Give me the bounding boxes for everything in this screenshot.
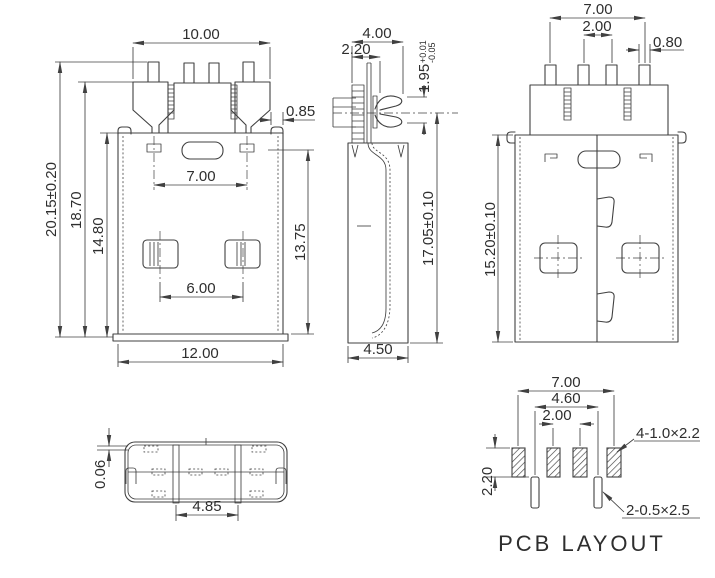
- top-view: 0.06 4.85: [92, 428, 287, 521]
- pcb-slot-right: [594, 477, 602, 508]
- top-view-body: [125, 438, 287, 503]
- dim-gap: 0.06: [92, 460, 109, 489]
- pcb-slot-left: [531, 477, 539, 508]
- back-view-insulator: [530, 85, 668, 135]
- label-pads: 4-1.0×2.2: [636, 425, 700, 442]
- back-view-shell: [507, 132, 686, 342]
- dim-top-width: 10.00: [182, 26, 220, 43]
- dim-pin-width: 0.80: [653, 34, 682, 51]
- pcb-layout: 7.00 4.60 2.00 2.20 4-1.0×2.2 2-0.5×2: [479, 374, 700, 556]
- back-view-pins: [545, 65, 650, 85]
- back-view-dimensions: 7.00 2.00 0.80 15.20±0.10: [482, 1, 684, 342]
- pcb-dimensions: 7.00 4.60 2.00 2.20 4-1.0×2.2 2-0.5×2: [479, 374, 700, 519]
- tab-mark-right: [640, 154, 652, 162]
- dimple-left: [143, 231, 178, 279]
- dim-shell-height: 18.70: [68, 191, 85, 229]
- side-view: 4.00 2.20 1.95 +0.01 -0.05 17.05±0.10 4: [333, 25, 458, 363]
- dim-bottom-width: 12.00: [181, 345, 219, 362]
- dim-pad-span: 7.00: [551, 374, 580, 391]
- dim-pin-pitch: 2.00: [582, 18, 611, 35]
- dim-dimple-span: 6.00: [186, 280, 215, 297]
- label-slots: 2-0.5×2.5: [626, 502, 690, 519]
- back-view: 7.00 2.00 0.80 15.20±0.10: [482, 1, 686, 342]
- side-tab-right: [276, 468, 286, 484]
- dimple-right: [225, 231, 260, 279]
- crimp-serrations: [168, 85, 237, 119]
- dim-pad-height: 2.20: [479, 467, 496, 496]
- side-tab-left: [126, 468, 136, 484]
- dim-ear-width: 0.85: [286, 103, 315, 120]
- dim-slot-span: 4.85: [192, 498, 221, 515]
- center-window: [182, 142, 223, 159]
- inner-marks: [144, 446, 266, 497]
- seam-window: [578, 151, 620, 168]
- pcb-layout-title: PCB LAYOUT: [498, 531, 666, 556]
- dim-depth: 4.00: [362, 25, 391, 42]
- latch-tab-upper: [597, 197, 614, 227]
- dim-total-height: 20.15±0.20: [43, 162, 60, 237]
- front-view-shell: [113, 127, 288, 341]
- dim-contact-tol-minus: -0.05: [427, 42, 437, 63]
- dim-pad-pitch: 2.00: [542, 407, 571, 424]
- contact-bar-right: [235, 445, 241, 503]
- dim-contact-height: 1.95: [416, 64, 433, 93]
- latch-tab-lower: [597, 292, 614, 322]
- dim-bottom-depth: 4.50: [363, 341, 392, 358]
- dim-height-back: 15.20±0.10: [482, 202, 499, 277]
- side-view-body: [348, 143, 408, 343]
- pcb-pads: [512, 448, 621, 508]
- front-view: 10.00 0.85 7.00 6.00 12.00 13.75: [43, 26, 315, 367]
- side-view-dimensions: 4.00 2.20 1.95 +0.01 -0.05 17.05±0.10 4: [341, 25, 443, 363]
- front-view-insulator: [133, 82, 270, 133]
- dim-right-height: 13.75: [292, 223, 309, 261]
- tab-mark-left: [545, 154, 557, 162]
- front-view-pins: [148, 62, 254, 83]
- dim-tab-offset: 2.20: [341, 41, 370, 58]
- technical-drawing-usb-connector: 10.00 0.85 7.00 6.00 12.00 13.75: [0, 0, 715, 578]
- dim-body-height: 14.80: [90, 217, 107, 255]
- dimple-back-left: [534, 235, 583, 281]
- contact-bar-left: [173, 445, 179, 503]
- dim-height-side: 17.05±0.10: [420, 191, 437, 266]
- dim-pin-span: 7.00: [583, 1, 612, 18]
- dimple-back-right: [616, 235, 665, 281]
- front-view-dimensions: 10.00 0.85 7.00 6.00 12.00 13.75: [43, 26, 315, 367]
- dim-slot-span-pcb: 4.60: [551, 390, 580, 407]
- dim-hole-span: 7.00: [186, 168, 215, 185]
